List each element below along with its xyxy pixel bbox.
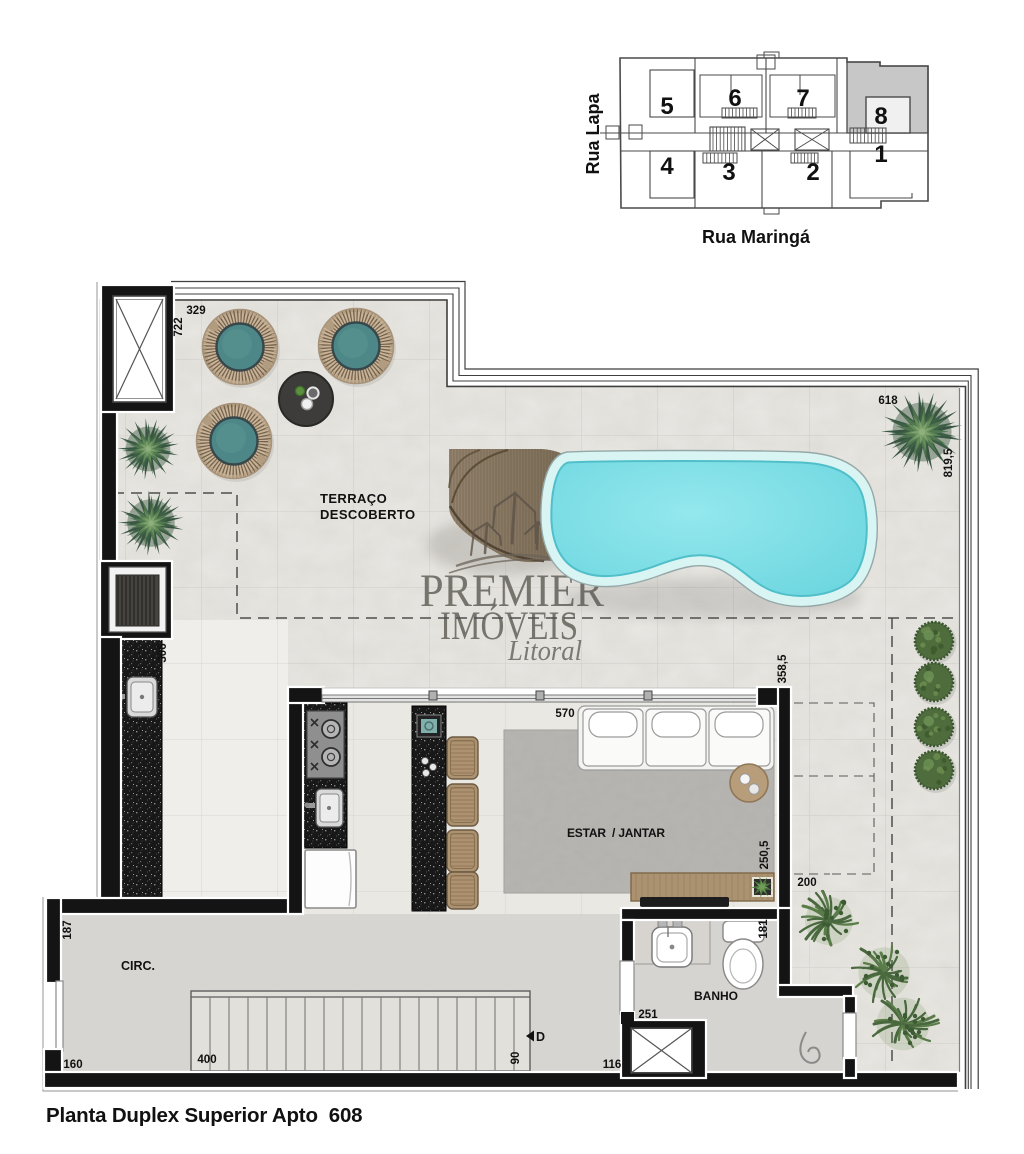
svg-text:187: 187 [62,920,74,939]
svg-text:Rua Lapa: Rua Lapa [583,93,603,175]
svg-text:CIRC.: CIRC. [121,959,155,973]
svg-text:1: 1 [874,141,887,168]
svg-text:Litoral: Litoral [507,635,582,667]
svg-text:200: 200 [797,877,816,889]
svg-text:570: 570 [555,708,574,720]
svg-text:358,5: 358,5 [777,654,789,683]
svg-text:306: 306 [157,643,169,662]
svg-text:181: 181 [758,919,770,939]
svg-text:160: 160 [63,1059,82,1071]
svg-text:618: 618 [878,395,898,407]
svg-text:BANHO: BANHO [694,989,738,1003]
svg-text:400: 400 [197,1054,216,1066]
svg-text:TERRAÇO: TERRAÇO [320,491,387,506]
svg-text:4: 4 [660,153,674,180]
svg-text:Planta Duplex Superior Apto 6: Planta Duplex Superior Apto 608 [46,1104,362,1127]
svg-text:251: 251 [638,1009,658,1021]
svg-text:5: 5 [660,93,673,120]
svg-text:7: 7 [796,85,809,112]
svg-text:250,5: 250,5 [759,840,771,869]
svg-text:722: 722 [173,317,185,336]
svg-text:90: 90 [510,1052,522,1065]
svg-text:D: D [536,1030,545,1044]
svg-text:6: 6 [728,85,741,112]
svg-text:DESCOBERTO: DESCOBERTO [320,507,416,522]
svg-text:Rua Maringá: Rua Maringá [702,227,811,247]
svg-text:329: 329 [186,305,205,317]
svg-text:3: 3 [722,159,735,186]
svg-text:ESTAR / JANTAR: ESTAR / JANTAR [567,826,665,840]
svg-text:819,5: 819,5 [943,448,955,477]
svg-text:116: 116 [603,1059,622,1071]
svg-text:2: 2 [806,159,819,186]
svg-text:8: 8 [874,103,887,130]
